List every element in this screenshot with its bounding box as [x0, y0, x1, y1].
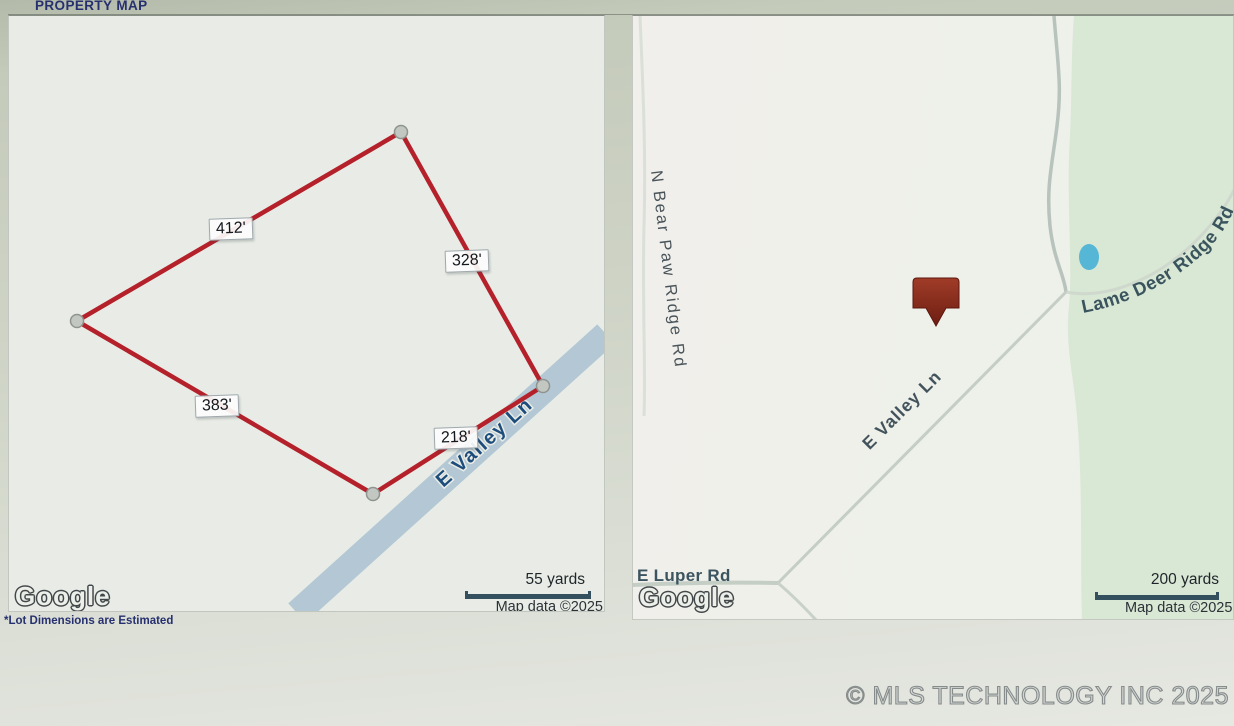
- n-bear-paw-ridge-rd-road: [640, 16, 645, 416]
- map-attribution: Map data ©2025: [449, 599, 603, 612]
- scale-distance-label: 200 yards: [1085, 571, 1219, 589]
- right-map-panel: N Bear Paw Ridge Rd Lame Deer Ridge Rd E…: [632, 15, 1234, 620]
- scale-bar: [465, 591, 591, 599]
- google-logo: Google: [15, 581, 111, 612]
- wooded-area: [1068, 16, 1234, 620]
- boundary-vertex-handle: [367, 488, 380, 501]
- pond: [1079, 244, 1099, 270]
- lot-dimensions-footnote: *Lot Dimensions are Estimated: [4, 615, 173, 627]
- dimension-label-south-side: 218': [434, 426, 478, 450]
- dimension-label-west-side: 383': [195, 394, 239, 418]
- e-valley-ln-road: [778, 292, 1066, 583]
- dimension-label-north-side: 412': [209, 217, 253, 241]
- road-label-n-bear-paw-ridge-rd: N Bear Paw Ridge Rd: [647, 169, 689, 369]
- property-location-marker-icon: [913, 278, 959, 326]
- north-boundary-road: [1049, 16, 1066, 292]
- scale-distance-label: 55 yards: [457, 571, 585, 589]
- road-label-e-valley-ln: E Valley Ln: [858, 366, 945, 453]
- map-attribution: Map data ©2025: [1125, 600, 1232, 616]
- mls-copyright-watermark: © MLS TECHNOLOGY INC 2025: [846, 682, 1229, 711]
- google-logo: Google: [639, 582, 735, 613]
- area-map-canvas: N Bear Paw Ridge Rd Lame Deer Ridge Rd E…: [633, 16, 1234, 620]
- page-title: PROPERTY MAP: [35, 0, 148, 11]
- scale-bar: [1095, 592, 1219, 600]
- road-spur: [778, 583, 817, 620]
- left-map-panel: E Valley Ln 412' 328' 383' 218' Google 5…: [8, 15, 605, 612]
- boundary-vertex-handle: [537, 380, 550, 393]
- boundary-vertex-handle: [71, 315, 84, 328]
- property-boundary-map-canvas: E Valley Ln: [9, 16, 605, 612]
- dimension-label-east-side: 328': [445, 249, 489, 273]
- boundary-vertex-handle: [395, 126, 408, 139]
